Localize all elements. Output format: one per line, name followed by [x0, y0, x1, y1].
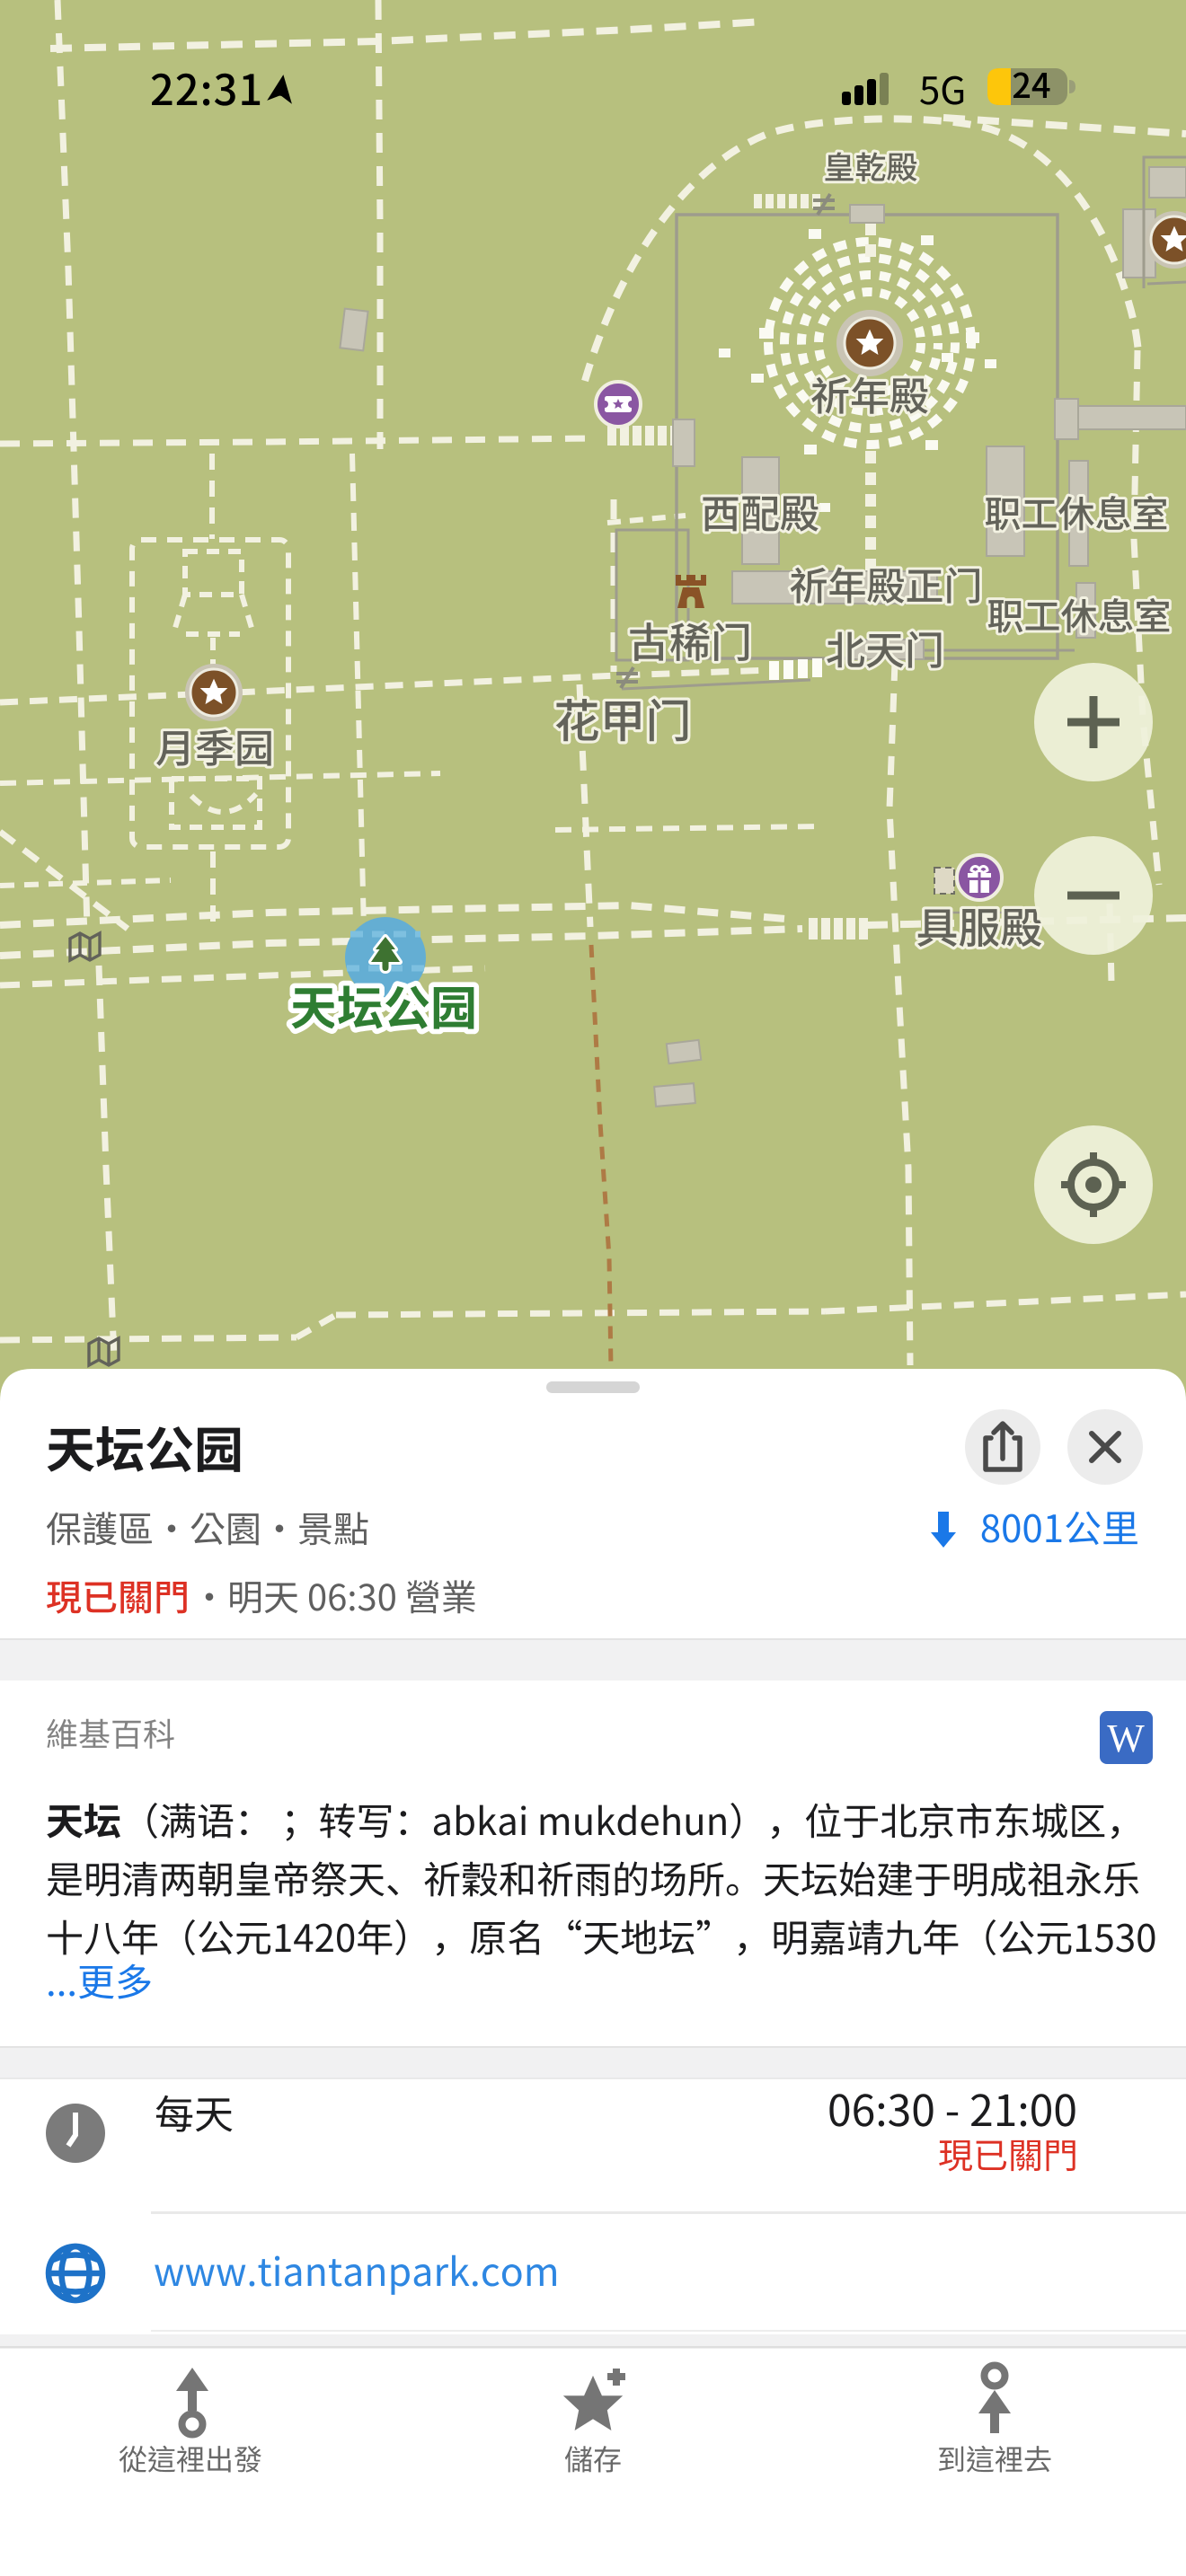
svg-text:W: W	[1107, 1716, 1145, 1760]
